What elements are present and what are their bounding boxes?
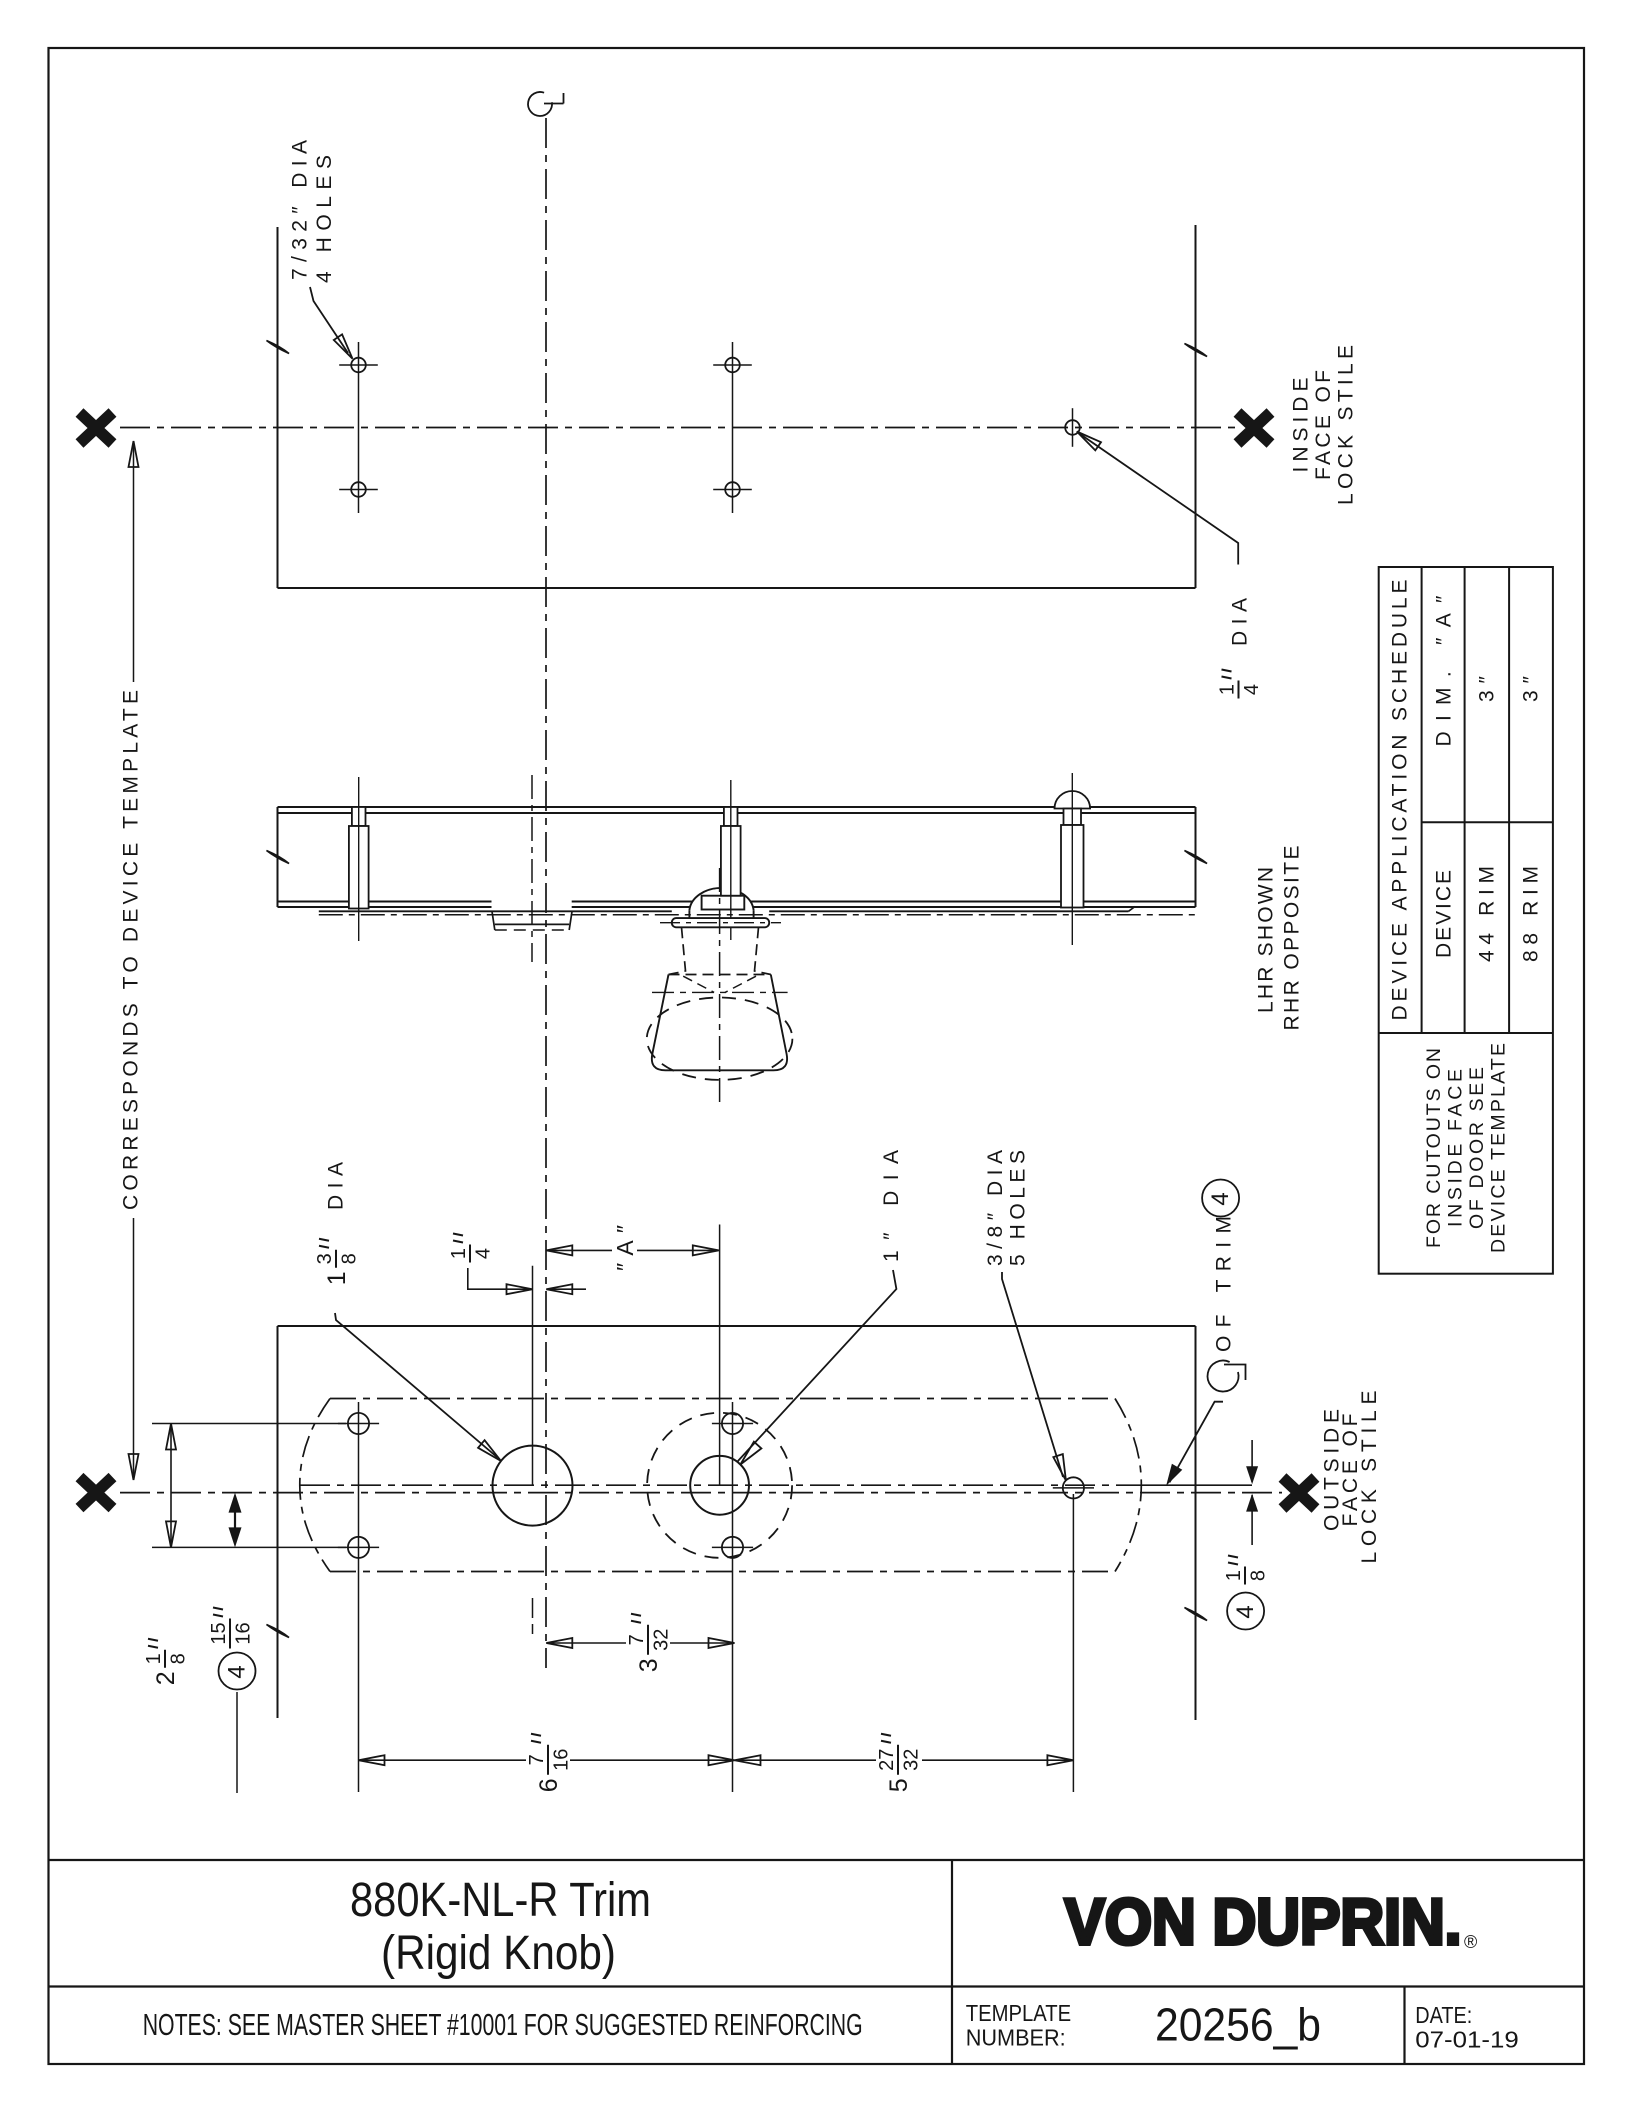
svg-text:20256_b: 20256_b [1155,1999,1321,2051]
svg-text:16: 16 [232,1622,254,1644]
svg-text:DEVICE TEMPLATE: DEVICE TEMPLATE [1488,1043,1510,1253]
svg-text:3: 3 [635,1658,663,1672]
svg-text:27: 27 [876,1749,898,1771]
svg-text:4: 4 [1207,1192,1234,1205]
svg-text:32: 32 [900,1749,922,1771]
svg-text:4: 4 [1232,1605,1259,1618]
svg-text:DIA: DIA [1229,598,1252,646]
svg-text:7: 7 [526,1754,548,1765]
svg-text:DEVICE: DEVICE [1433,870,1456,958]
svg-text:CORRESPONDS TO DEVICE TEMPLATE: CORRESPONDS TO DEVICE TEMPLATE [120,690,143,1210]
svg-text:®: ® [1464,1932,1477,1952]
svg-text:2: 2 [152,1671,180,1685]
svg-text:FACE OF: FACE OF [1312,370,1335,480]
svg-text:32: 32 [650,1629,672,1651]
svg-text:DIA: DIA [325,1162,348,1210]
svg-text:″A″: ″A″ [612,1225,638,1271]
svg-text:1: 1 [1223,1570,1245,1581]
svg-text:15: 15 [208,1622,230,1644]
svg-text:(Rigid Knob): (Rigid Knob) [381,1927,616,1980]
svg-text:OF DOOR SEE: OF DOOR SEE [1466,1067,1488,1229]
svg-text:880K-NL-R Trim: 880K-NL-R Trim [350,1874,651,1927]
svg-text:RHR OPPOSITE: RHR OPPOSITE [1281,846,1304,1031]
svg-text:NOTES: SEE MASTER SHEET #10001: NOTES: SEE MASTER SHEET #10001 FOR SUGGE… [143,2007,863,2042]
svg-text:7/32″ DIA: 7/32″ DIA [289,140,312,280]
svg-text:3: 3 [314,1253,336,1264]
svg-text:7: 7 [626,1634,648,1645]
svg-text:1: 1 [1217,684,1239,695]
svg-text:LHR SHOWN: LHR SHOWN [1255,867,1278,1013]
svg-text:16: 16 [550,1749,572,1771]
svg-text:5: 5 [885,1778,913,1792]
svg-text:1: 1 [448,1248,470,1259]
svg-text:8: 8 [1247,1570,1269,1581]
svg-text:LOCK STILE: LOCK STILE [1335,345,1358,505]
svg-text:07-01-19: 07-01-19 [1415,2026,1519,2052]
svg-text:6: 6 [535,1778,563,1792]
svg-text:4: 4 [224,1665,251,1678]
svg-text:DATE:: DATE: [1415,2002,1472,2028]
svg-text:8: 8 [338,1253,360,1264]
svg-text:4: 4 [472,1248,494,1259]
svg-text:TEMPLATE: TEMPLATE [966,2000,1071,2026]
svg-text:4: 4 [1241,684,1263,695]
svg-text:8: 8 [167,1653,189,1664]
svg-text:FOR CUTOUTS ON: FOR CUTOUTS ON [1423,1048,1445,1248]
svg-text:1: 1 [143,1653,165,1664]
svg-text:NUMBER:: NUMBER: [966,2024,1066,2050]
svg-text:1: 1 [323,1271,351,1285]
svg-text:VON DUPRIN.: VON DUPRIN. [1065,1885,1462,1958]
